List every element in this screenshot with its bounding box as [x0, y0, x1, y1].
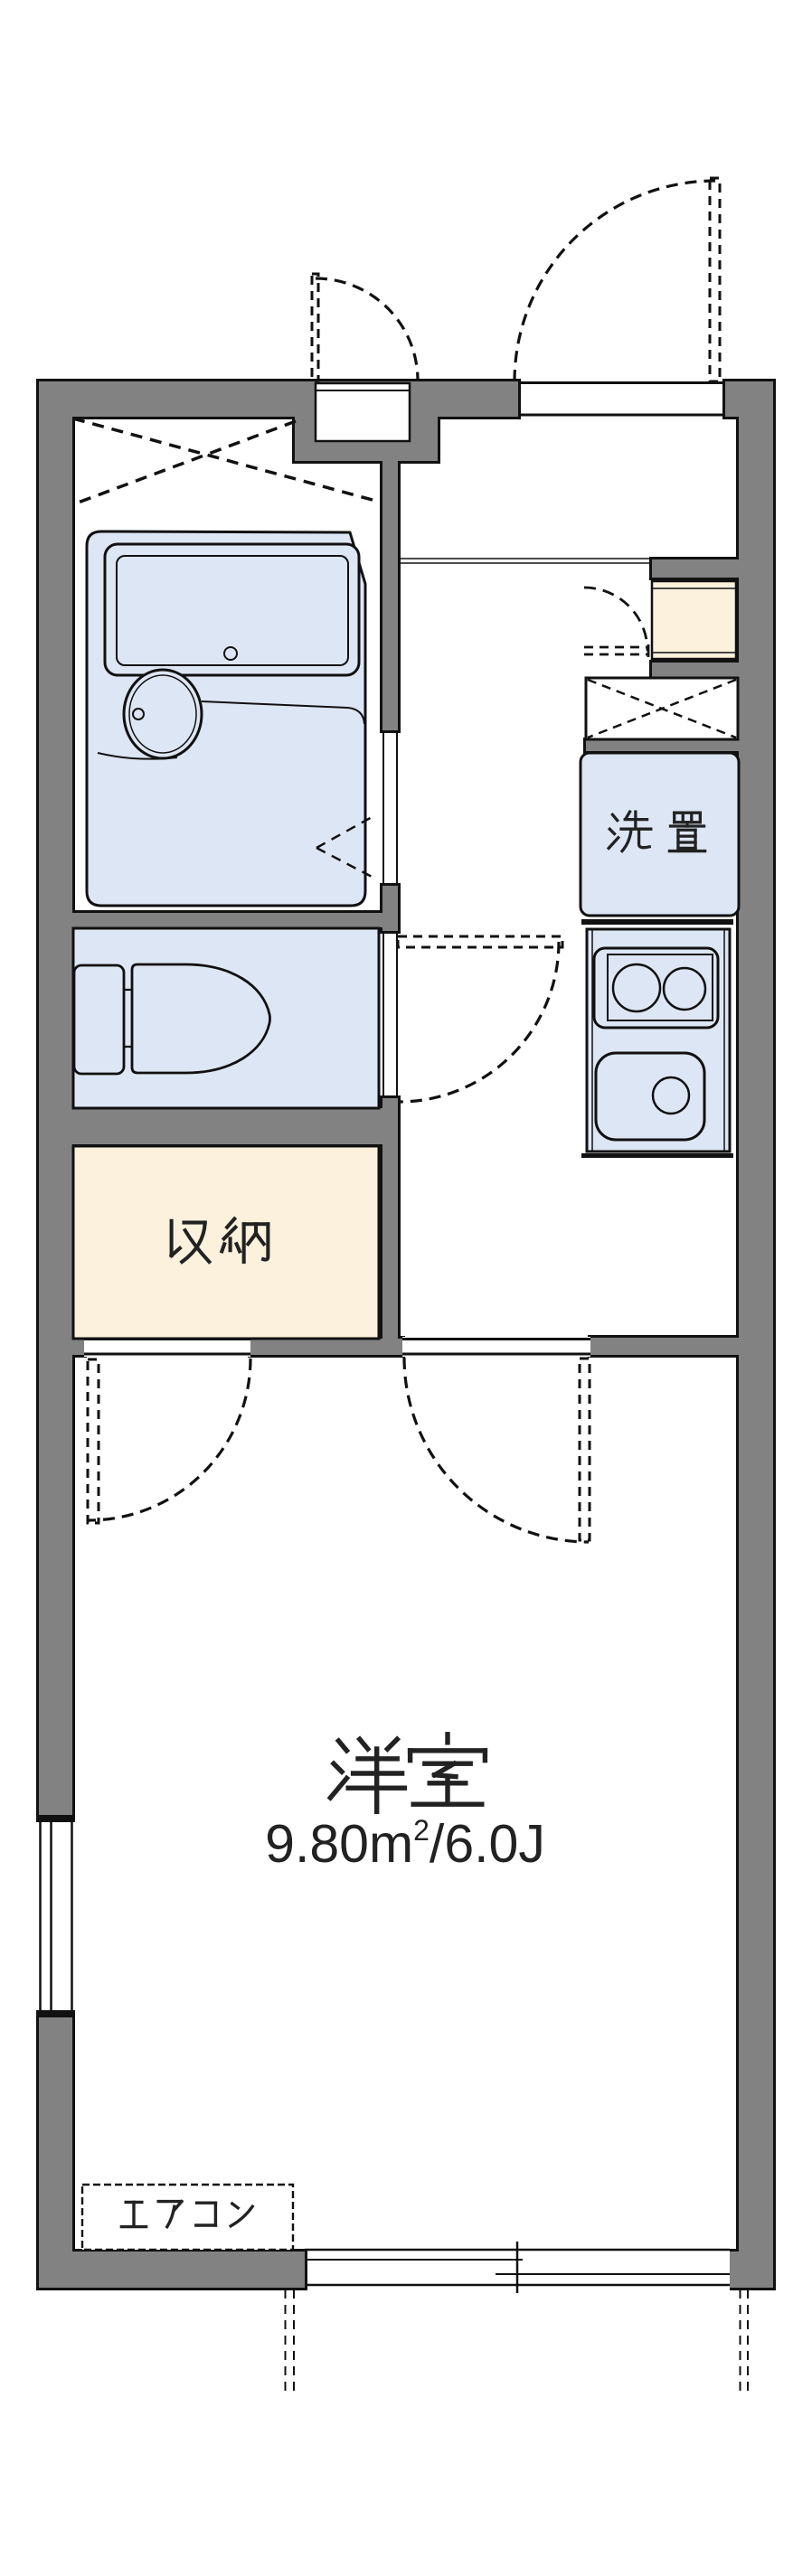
svg-text:9.80m2/6.0J: 9.80m2/6.0J: [265, 1814, 545, 1874]
